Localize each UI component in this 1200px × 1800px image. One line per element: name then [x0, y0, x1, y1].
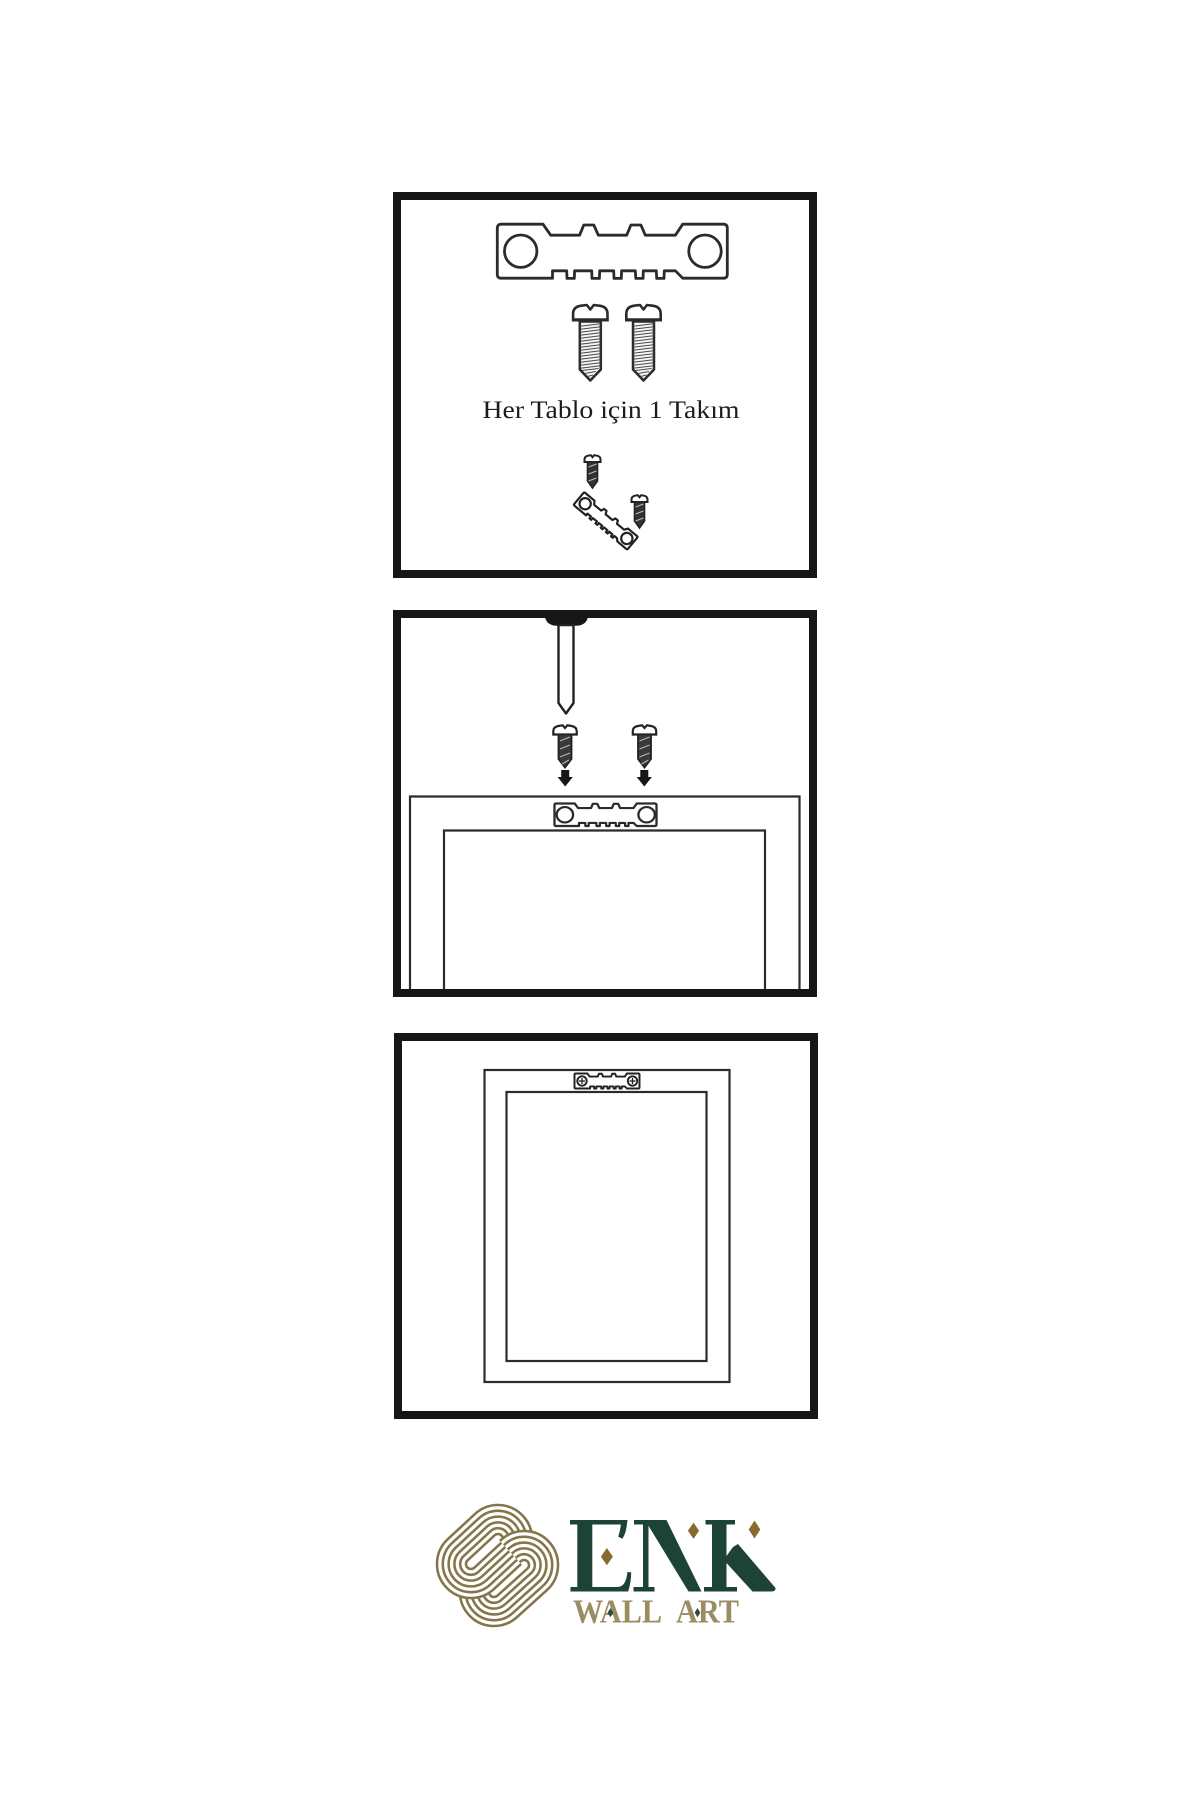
svg-text:ART: ART — [676, 1594, 739, 1631]
svg-text:WALL: WALL — [573, 1594, 662, 1631]
svg-text:Her Tablo için 1 Takım: Her Tablo için 1 Takım — [483, 397, 741, 424]
